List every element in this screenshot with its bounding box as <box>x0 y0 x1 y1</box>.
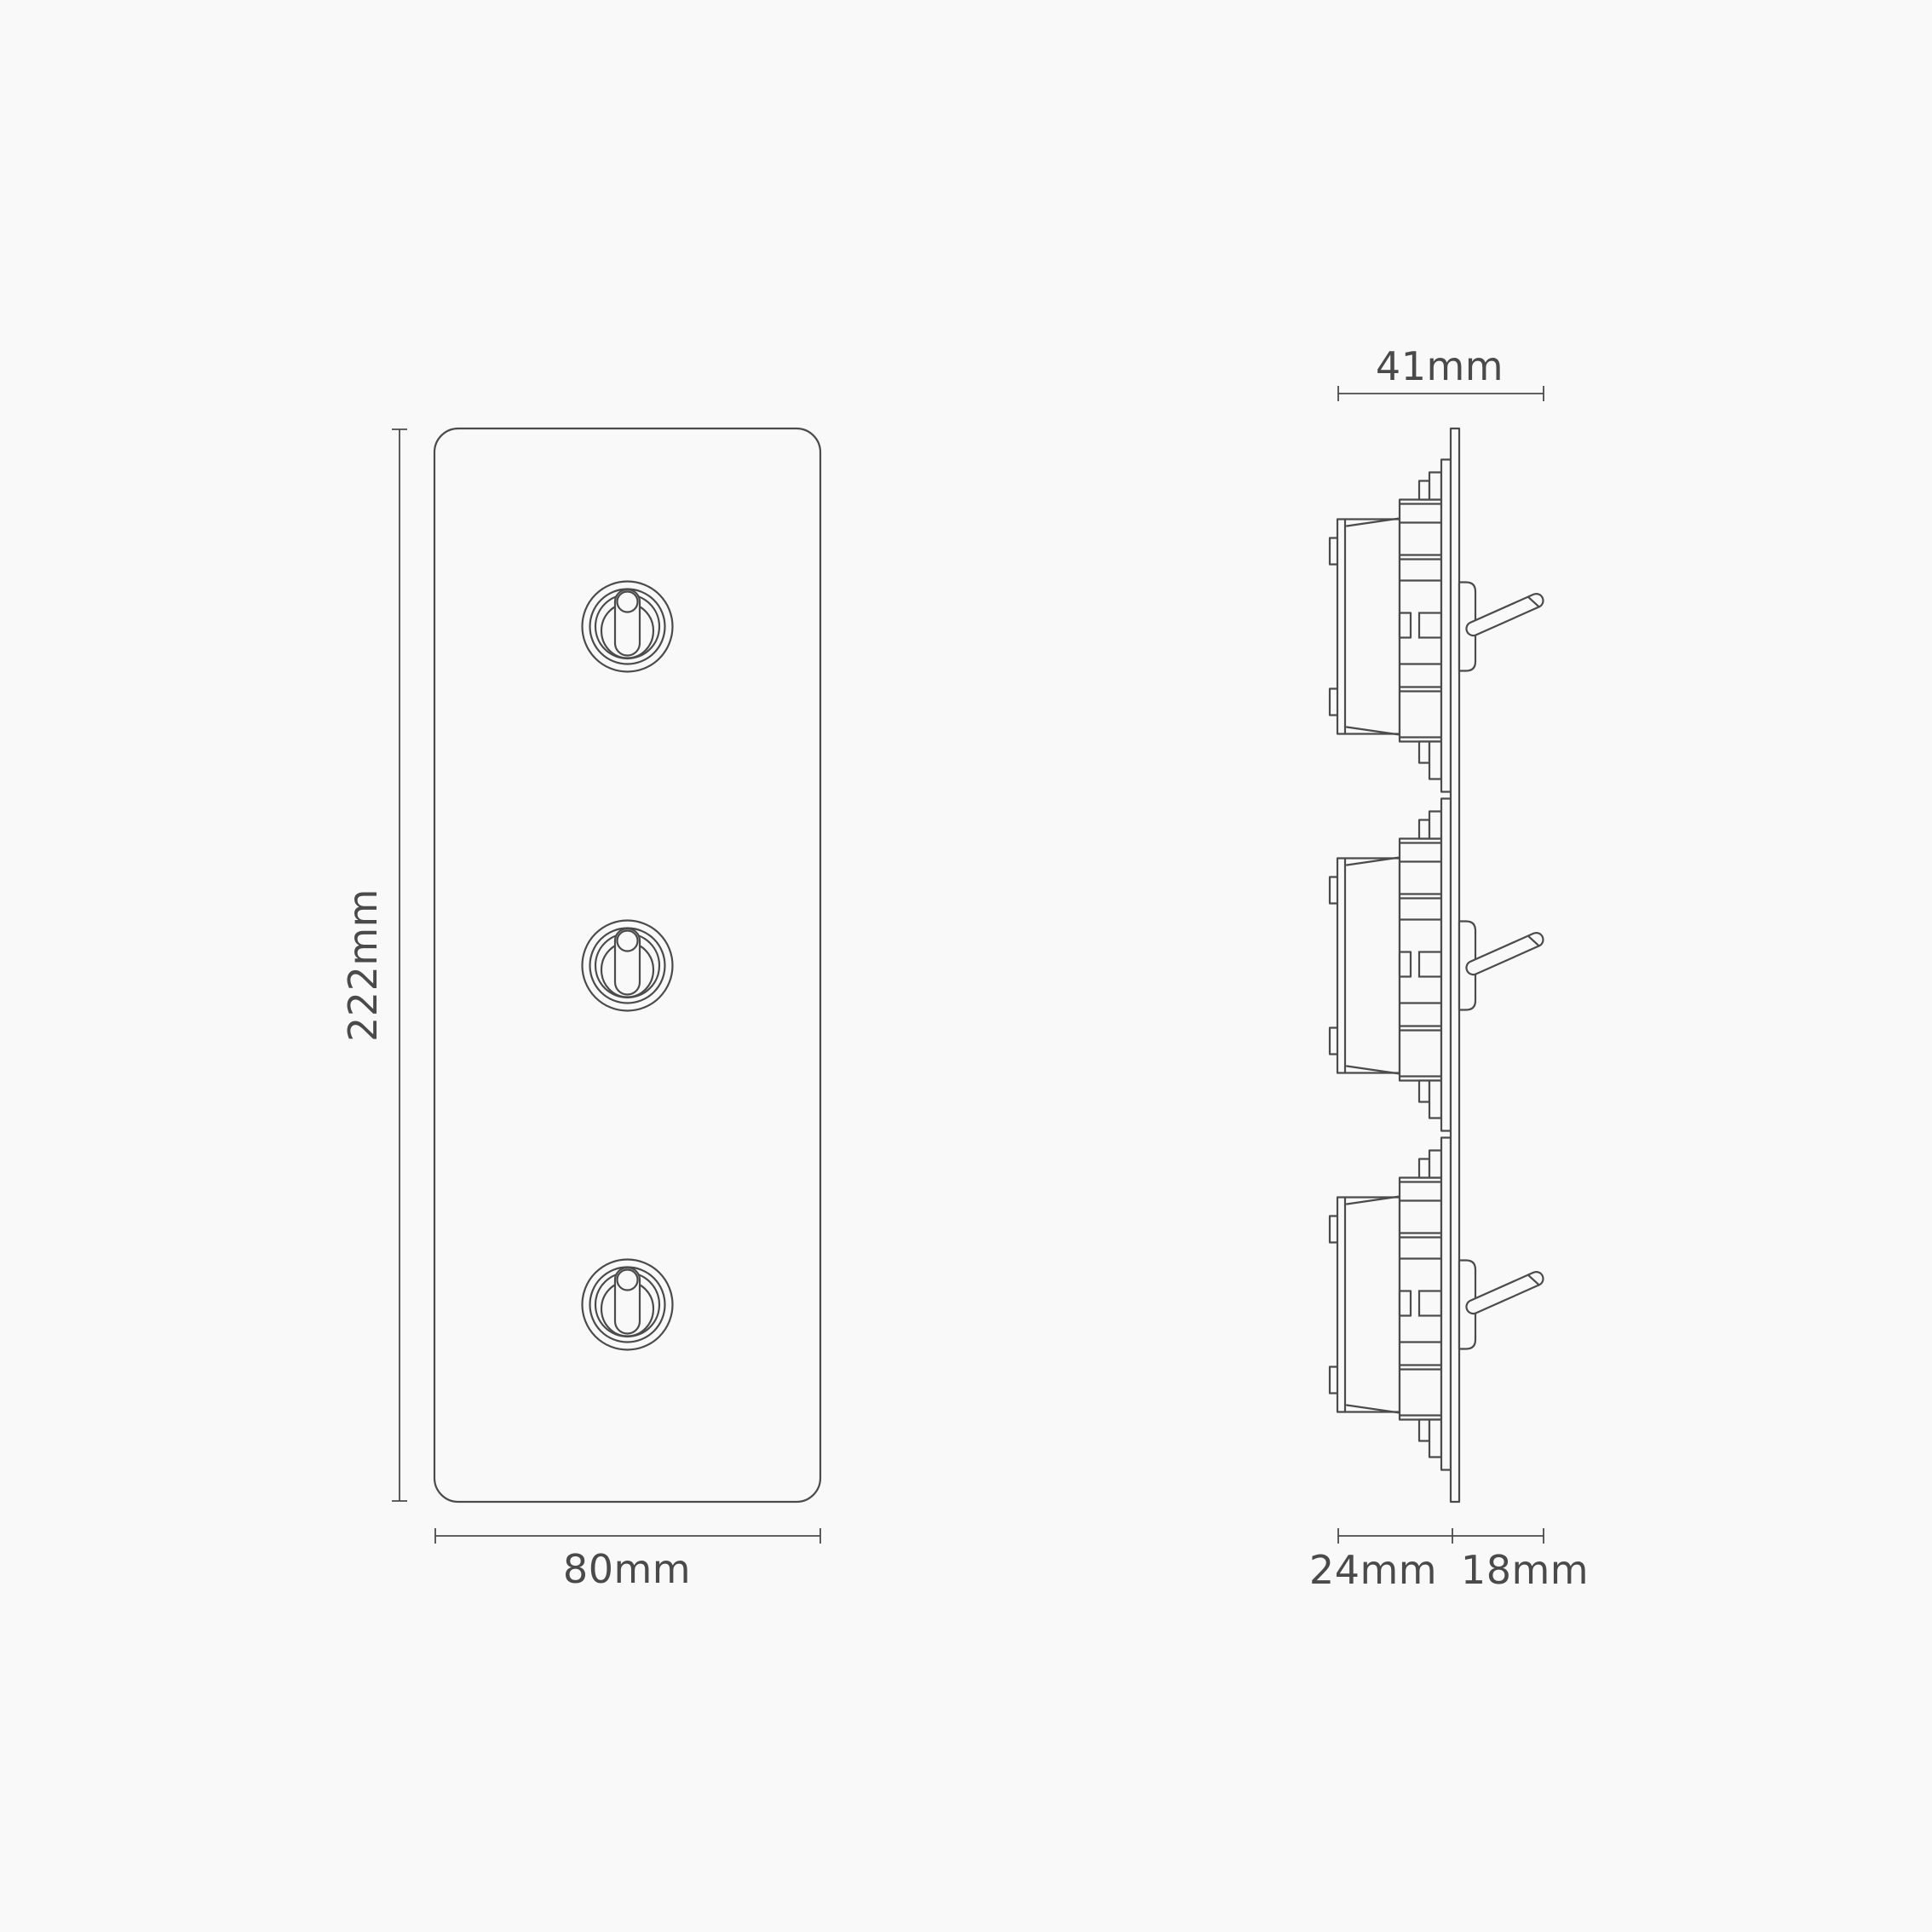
front-toggle-1 <box>583 582 673 672</box>
side-mechanism-3 <box>1330 1138 1451 1470</box>
front-toggle-2 <box>583 921 673 1011</box>
side-toggle-3 <box>1459 1261 1545 1349</box>
width-dimension: 80mm <box>435 1528 820 1592</box>
height-dimension-label: 222mm <box>340 888 386 1042</box>
side-toggle-2 <box>1459 922 1545 1010</box>
side-mechanism-2 <box>1330 799 1451 1131</box>
mechanism-depth-label: 24mm <box>1309 1547 1437 1593</box>
side-plate <box>1451 428 1459 1502</box>
height-dimension: 222mm <box>340 429 407 1501</box>
toggle-projection-label: 18mm <box>1461 1547 1589 1593</box>
side-toggle-1 <box>1459 583 1545 671</box>
side-width-dimension-label: 41mm <box>1376 343 1504 389</box>
side-view: 41mm 24mm 18mm <box>1309 343 1589 1593</box>
side-width-dimension: 41mm <box>1338 343 1544 401</box>
front-view: 222mm 80mm <box>340 428 820 1592</box>
technical-drawing-canvas: 222mm 80mm 41mm 2 <box>0 0 1932 1932</box>
side-mechanism-1 <box>1330 460 1451 792</box>
depth-dimension: 24mm 18mm <box>1309 1528 1589 1593</box>
width-dimension-label: 80mm <box>563 1546 691 1592</box>
switch-dimension-diagram: 222mm 80mm 41mm 2 <box>0 0 1932 1932</box>
front-toggle-3 <box>583 1260 673 1350</box>
